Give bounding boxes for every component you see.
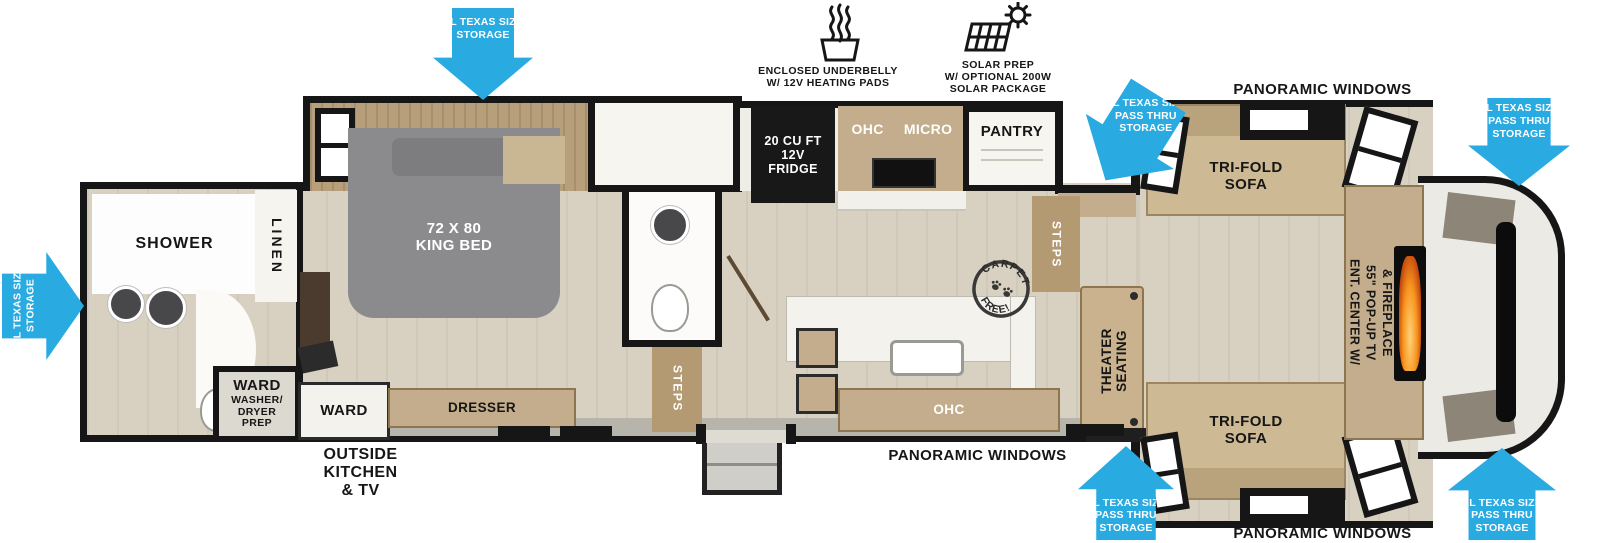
half-bath-sink-icon [651, 206, 689, 244]
passthru-arrow-bottom-right: XL TEXAS SIZEPASS THRUSTORAGE [1448, 448, 1556, 540]
storage-arrow-bedroom: XL TEXAS SIZESTORAGE [433, 8, 533, 100]
door-jamb [696, 424, 706, 444]
kitchen-counter [838, 191, 966, 211]
half-bath-toilet-icon [651, 284, 689, 332]
linen-cabinet: LINEN [255, 190, 297, 302]
bar-stool-icon [796, 328, 838, 368]
theater-seating: THEATERSEATING [1080, 286, 1144, 432]
shower-area: SHOWER [92, 194, 257, 294]
entry-step [702, 443, 782, 495]
dresser: DRESSER [388, 388, 576, 428]
bathroom-sink-icon [108, 286, 144, 322]
bedroom-wardrobe: WARD [298, 382, 390, 440]
micro-label: MICRO [904, 122, 953, 138]
front-cap-panel [1432, 228, 1468, 410]
panoramic-windows-label-bottom-mid: PANORAMIC WINDOWS [870, 448, 1085, 465]
half-bath [622, 185, 722, 347]
bed-pillows [392, 138, 516, 176]
entry-door-opening [702, 430, 790, 443]
door-jamb [786, 424, 796, 444]
washer-dryer-prep: WARD WASHER/ DRYER PREP [213, 366, 301, 442]
front-tv-slot [1496, 222, 1516, 422]
panoramic-windows-label-bottom-right: PANORAMIC WINDOWS [1205, 526, 1440, 543]
pantry: PANTRY [963, 106, 1061, 191]
passthru-arrow-top-right: XL TEXAS SIZEPASS THRUSTORAGE [1468, 98, 1570, 186]
stove-icon [872, 158, 936, 188]
solar-prep-label: SOLAR PREPW/ OPTIONAL 200WSOLAR PACKAGE [928, 60, 1068, 95]
ward-label: WARD [233, 378, 280, 395]
skylight-window-icon [1240, 102, 1345, 140]
bottom-window-icon [560, 426, 612, 438]
entertainment-center-label: ENT. CENTER W/ 55" POP-UP TV & FIREPLACE [1346, 190, 1398, 435]
bottom-window-icon [1066, 424, 1124, 436]
solar-prep-icon [956, 2, 1040, 60]
fireplace-icon [1394, 246, 1426, 381]
bathroom-sink-icon [146, 288, 186, 328]
bottom-window-icon [498, 426, 550, 438]
bar-stool-icon [796, 374, 838, 414]
storage-arrow-left: XL TEXAS SIZESTORAGE [2, 252, 84, 360]
king-bed: 72 X 80KING BED [348, 128, 560, 318]
bed-blanket [503, 136, 565, 184]
kitchen-upper-cabinets: OHC MICRO [838, 106, 966, 191]
skylight-window-icon [1240, 488, 1345, 522]
enclosed-underbelly-icon [808, 2, 872, 64]
outside-kitchen-label: OUTSIDEKITCHEN& TV [288, 446, 433, 500]
enclosed-underbelly-label: ENCLOSED UNDERBELLYW/ 12V HEATING PADS [748, 66, 908, 90]
island-sink-icon [890, 340, 964, 376]
refrigerator: 20 CU FT12VFRIDGE [751, 106, 835, 203]
front-closet [588, 96, 742, 192]
panoramic-windows-label-top: PANORAMIC WINDOWS [1205, 82, 1440, 99]
bedroom-steps: STEPS [652, 344, 702, 432]
ohc-label: OHC [852, 122, 884, 138]
floorplan-diagram: ENCLOSED UNDERBELLYW/ 12V HEATING PADS S… [0, 0, 1600, 543]
island-overhead-cabinet: OHC [838, 388, 1060, 432]
